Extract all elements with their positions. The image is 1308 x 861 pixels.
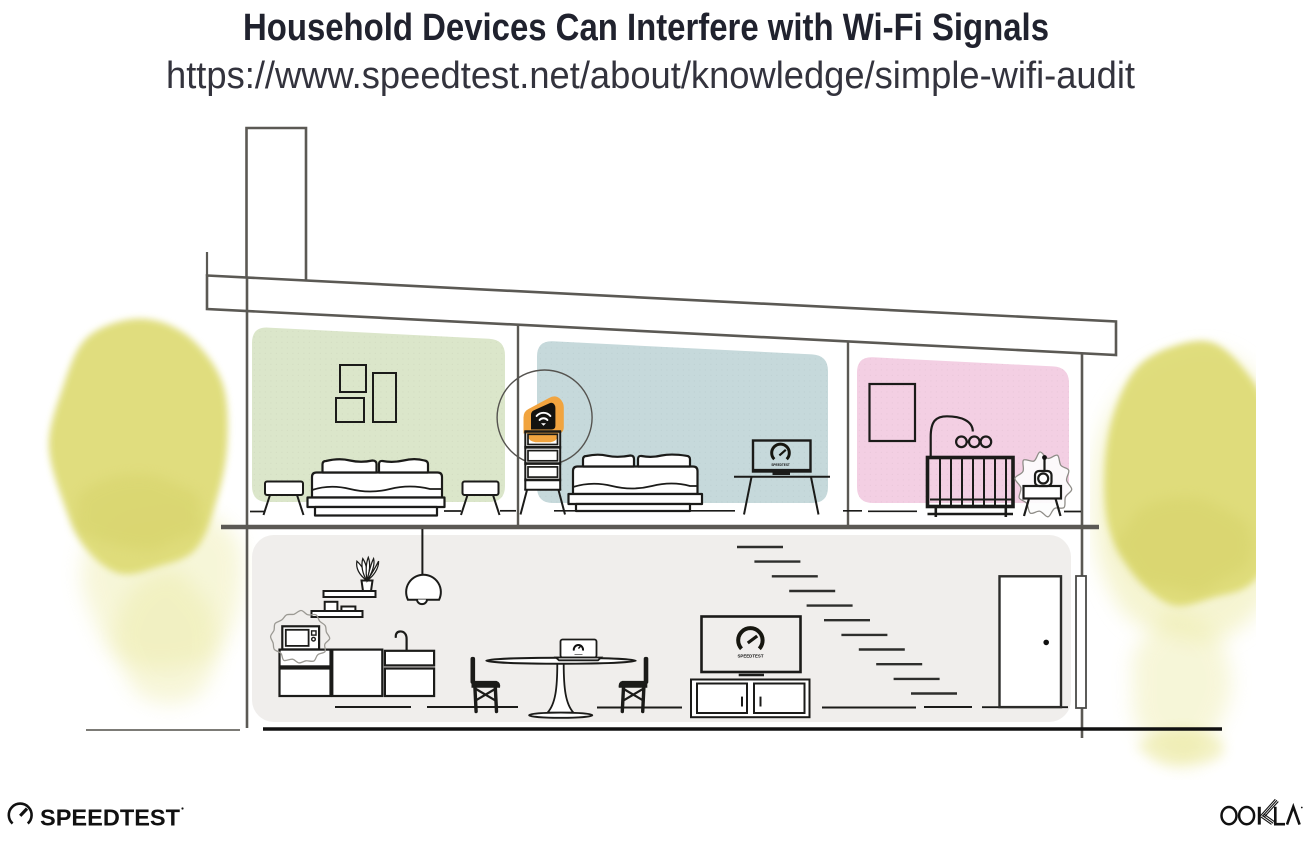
svg-text:SPEEDTEST: SPEEDTEST bbox=[40, 804, 181, 830]
svg-text:Household Devices Can Interfer: Household Devices Can Interfere with Wi-… bbox=[243, 7, 1049, 49]
svg-text:SPEEDTEST: SPEEDTEST bbox=[771, 463, 790, 467]
svg-text:SPEEDTEST: SPEEDTEST bbox=[738, 653, 764, 658]
svg-text:https://www.speedtest.net/abou: https://www.speedtest.net/about/knowledg… bbox=[166, 55, 1135, 97]
